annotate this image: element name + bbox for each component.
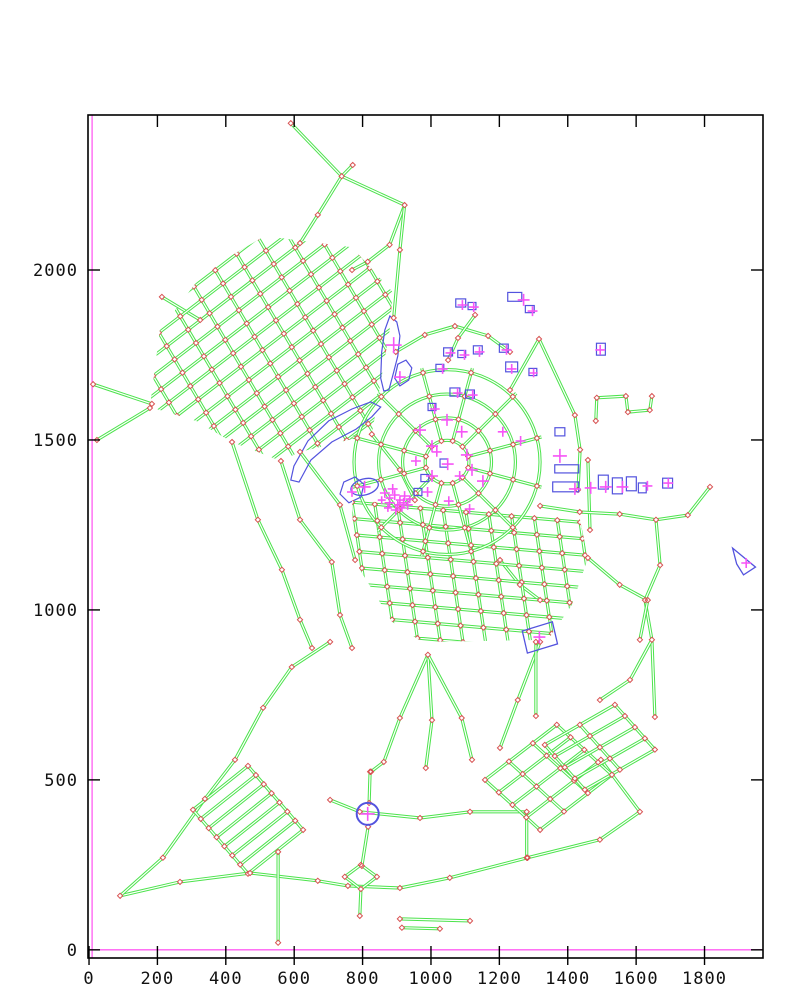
building-footprint [638,483,646,493]
building-footprint [440,459,448,467]
x-tick-label: 1000 [408,969,453,989]
arrow-site [733,548,756,575]
building-footprint [468,302,476,309]
building-footprint [555,428,565,436]
northwest-district [108,123,526,553]
y-tick-label: 1000 [33,601,78,621]
y-tick-label: 1500 [33,431,78,451]
y-tick-label: 500 [44,771,78,791]
x-tick-label: 200 [141,969,175,989]
axes-layer: 0200400600800100012001400160018000500100… [33,115,763,989]
southwest-comb [193,766,303,874]
y-tick-label: 0 [67,941,78,961]
x-tick-label: 1600 [614,969,659,989]
map-plot: 0200400600800100012001400160018000500100… [0,0,800,1000]
building-footprint [473,346,482,354]
x-tick-label: 1200 [477,969,522,989]
building-footprint [612,478,622,494]
building-footprint [456,299,466,307]
plot-window: 0200400600800100012001400160018000500100… [0,0,800,1000]
building-footprint [626,477,636,491]
road-network-layer [93,123,710,943]
x-tick-label: 600 [277,969,311,989]
x-tick-label: 800 [346,969,380,989]
x-tick-label: 0 [83,969,94,989]
x-tick-label: 1800 [682,969,727,989]
x-tick-label: 400 [209,969,243,989]
buildings-layer [349,292,755,824]
building-footprint [555,465,579,473]
y-tick-label: 2000 [33,261,78,281]
x-tick-label: 1400 [545,969,590,989]
